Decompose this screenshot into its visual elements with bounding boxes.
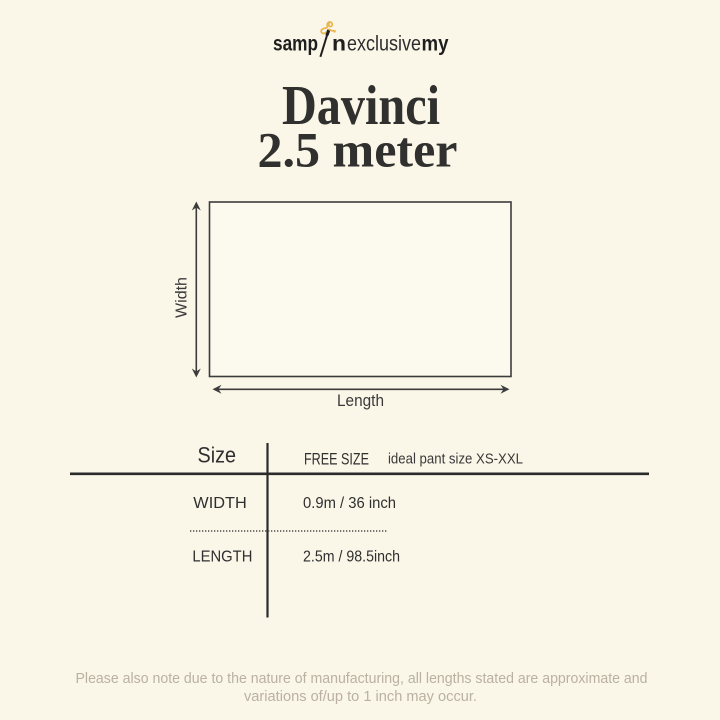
svg-text:Length: Length [337,392,384,410]
svg-text:ideal pant size XS-XXL: ideal pant size XS-XXL [388,451,523,468]
svg-text:Please also note due to the na: Please also note due to the nature of ma… [76,671,648,687]
svg-text:samp: samp [273,33,318,56]
svg-text:0.9m / 36 inch: 0.9m / 36 inch [303,495,396,512]
svg-text:2.5 meter: 2.5 meter [258,122,458,178]
svg-text:WIDTH: WIDTH [193,495,247,512]
svg-text:my: my [422,33,449,56]
svg-text:variations of/up to 1 inch may: variations of/up to 1 inch may occur. [244,689,477,705]
svg-text:LENGTH: LENGTH [192,549,252,566]
svg-text:n: n [332,33,346,56]
svg-text:2.5m / 98.5inch: 2.5m / 98.5inch [303,549,400,566]
svg-text:Size: Size [198,443,237,468]
svg-text:FREE SIZE: FREE SIZE [304,450,369,469]
svg-text:exclusive: exclusive [347,33,421,56]
svg-text:Width: Width [174,277,191,318]
